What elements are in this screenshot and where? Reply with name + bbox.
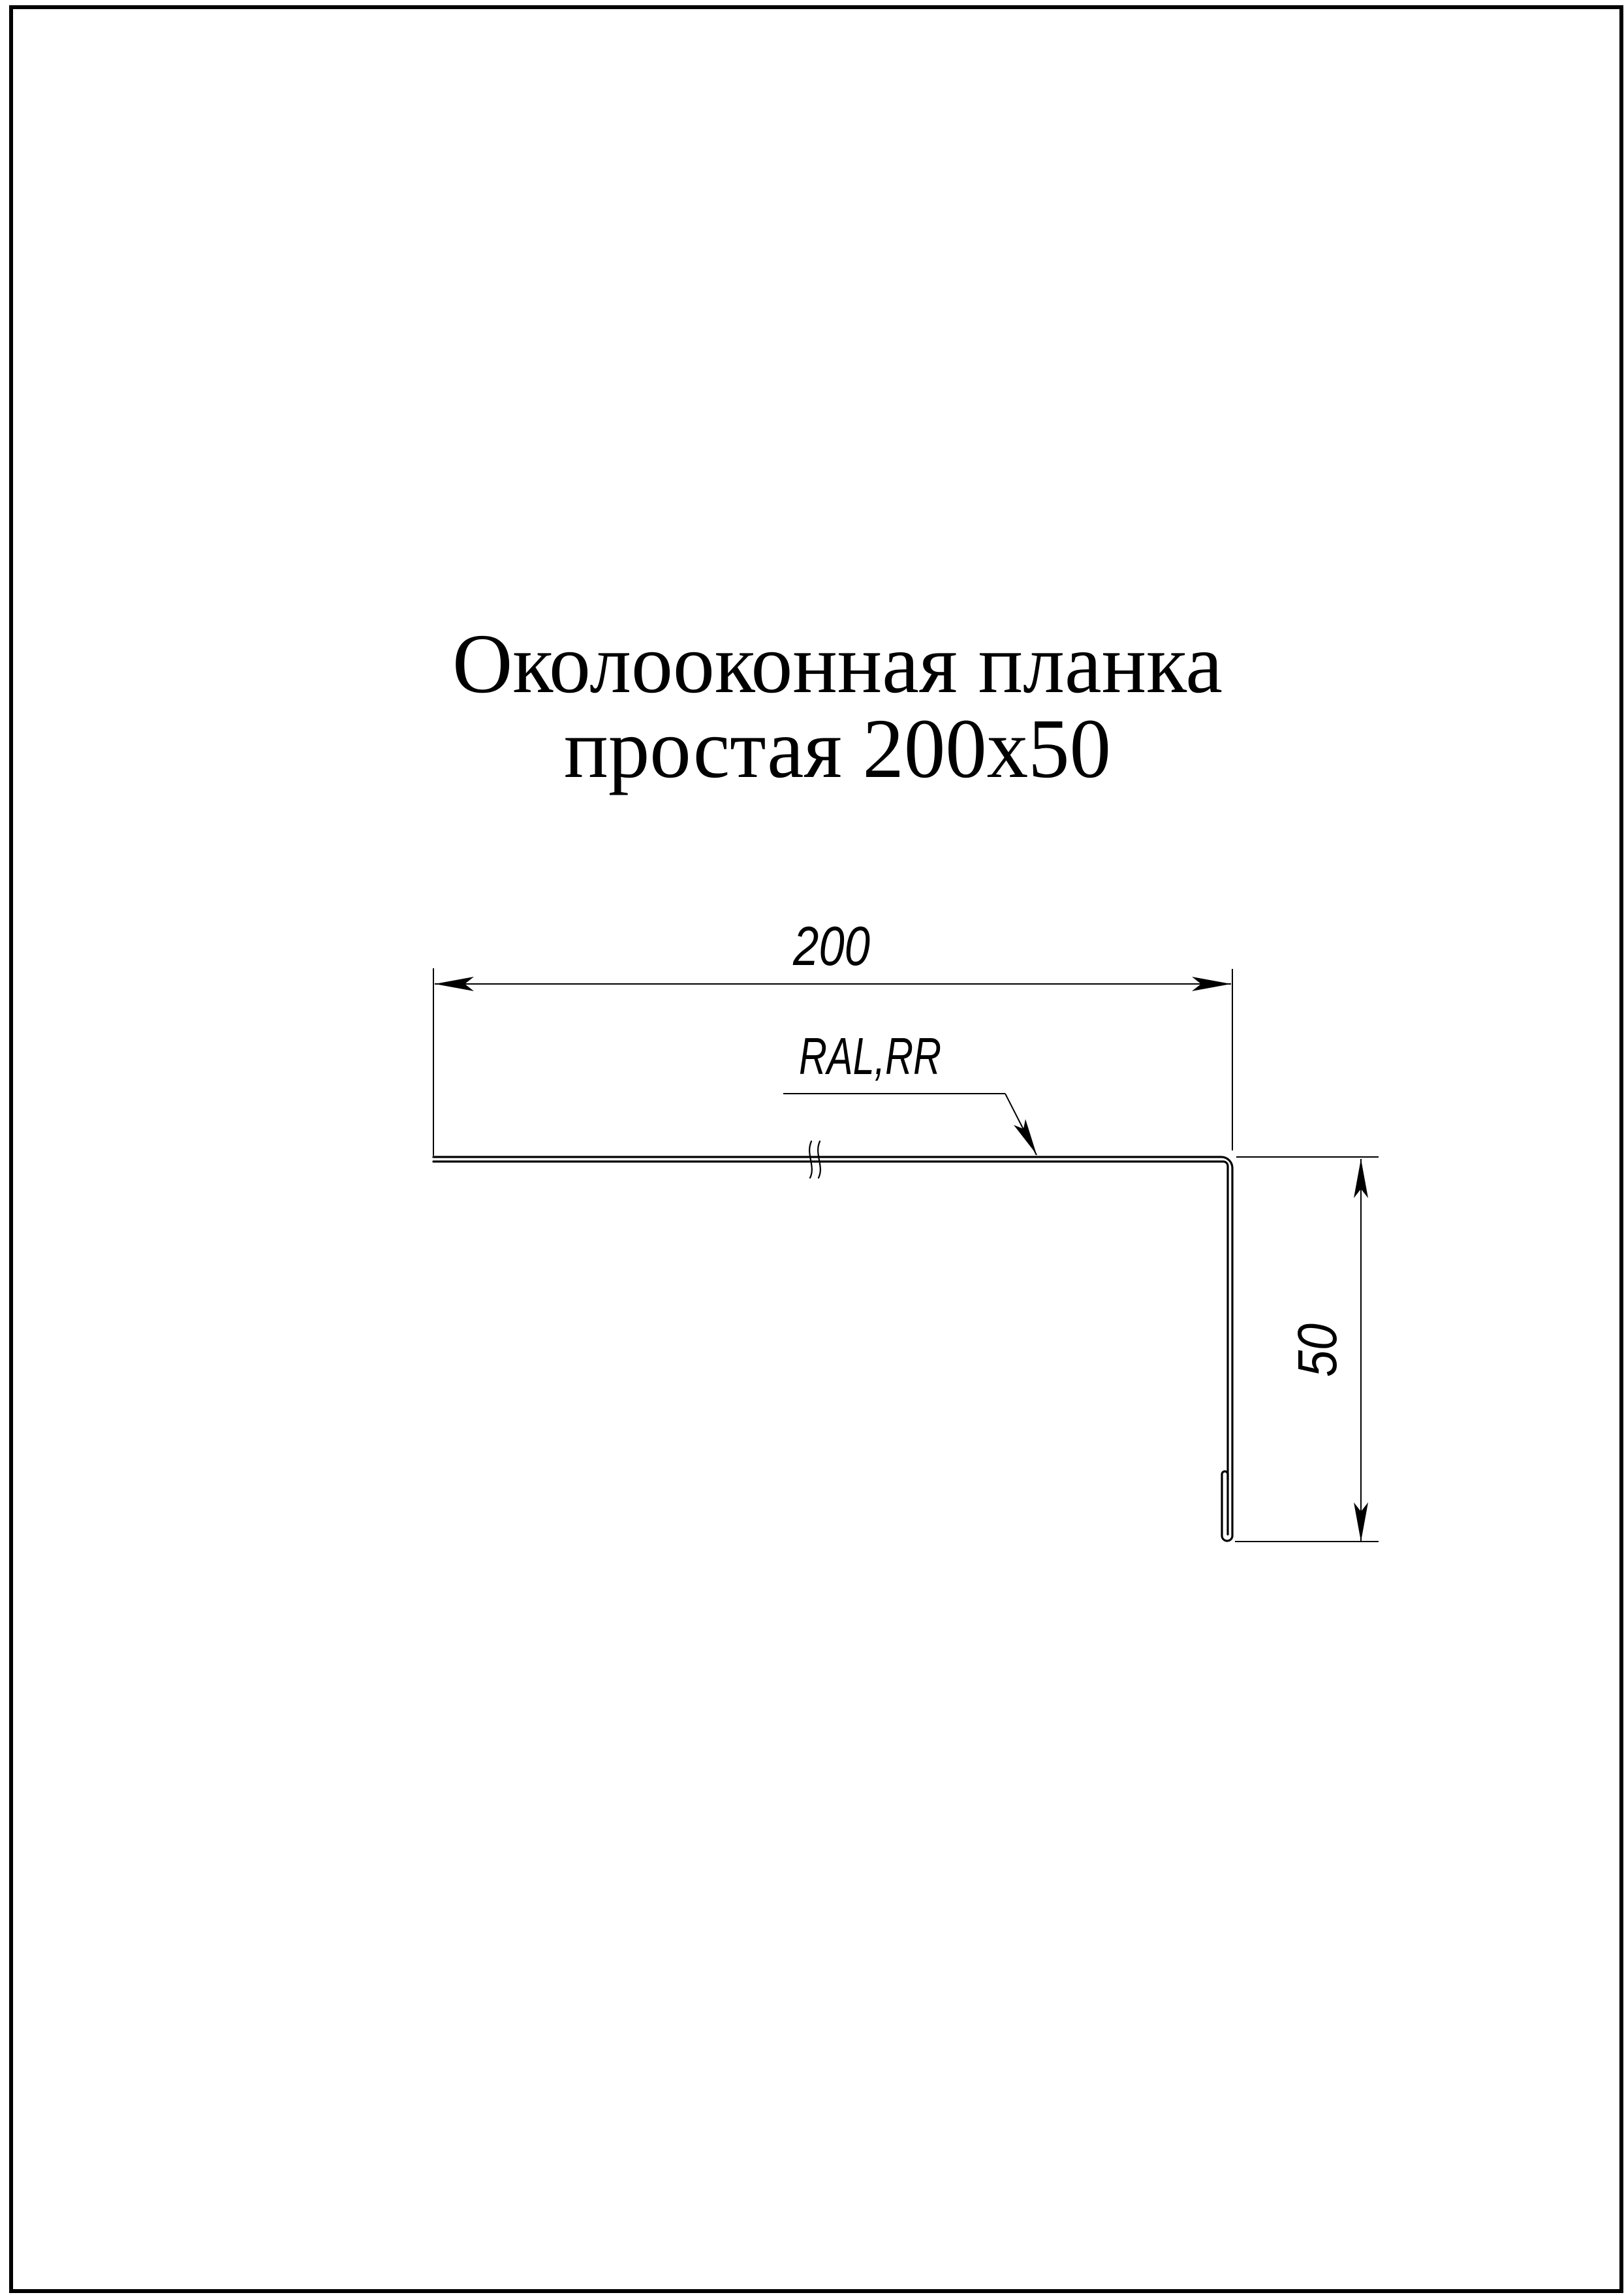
page-title-line-2: простая 200х50	[564, 702, 1111, 796]
height-dimension-label: 50	[1287, 1323, 1348, 1377]
page-title-line-1: Околооконная планка	[452, 617, 1223, 711]
drawing-sheet: Околооконная планка простая 200х50 200 5…	[0, 0, 1624, 2295]
break-mark-right-curve	[818, 1141, 820, 1178]
profile-inner-surface-line	[433, 1162, 1228, 1534]
break-mark-left-curve	[809, 1141, 812, 1178]
sheet-border	[11, 7, 1621, 2291]
drawing-canvas: Околооконная планка простая 200х50 200 5…	[0, 0, 1624, 2295]
profile-outer-surface-line	[433, 1157, 1232, 1541]
coating-label: RAL,RR	[799, 1027, 941, 1085]
width-dimension-label: 200	[792, 915, 870, 977]
leader-arrow-icon	[1014, 1119, 1037, 1154]
